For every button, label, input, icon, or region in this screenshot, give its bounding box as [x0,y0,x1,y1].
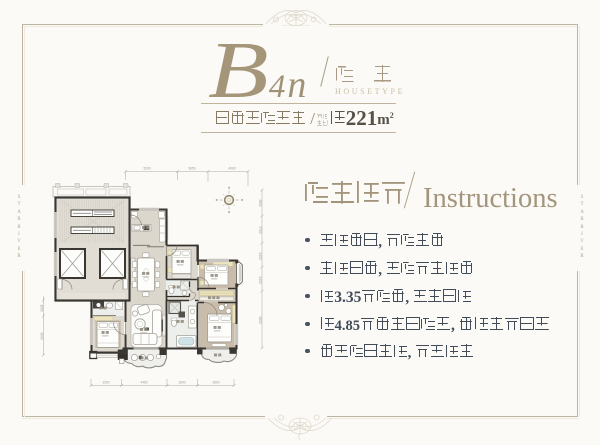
svg-text:5600: 5600 [258,316,262,323]
svg-text:3900: 3900 [40,332,44,339]
svg-text:2700: 2700 [258,226,262,233]
svg-text:3050: 3050 [188,167,195,171]
svg-text:1600: 1600 [40,304,44,311]
svg-text:4450: 4450 [140,381,147,385]
svg-text:2400: 2400 [258,276,262,283]
svg-text:4000: 4000 [228,167,235,171]
svg-text:5200: 5200 [143,167,150,171]
svg-text:2400: 2400 [258,252,262,259]
svg-text:3600: 3600 [212,381,219,385]
svg-text:1500: 1500 [102,381,109,385]
svg-text:2600: 2600 [178,381,185,385]
svg-text:2600: 2600 [258,199,262,206]
